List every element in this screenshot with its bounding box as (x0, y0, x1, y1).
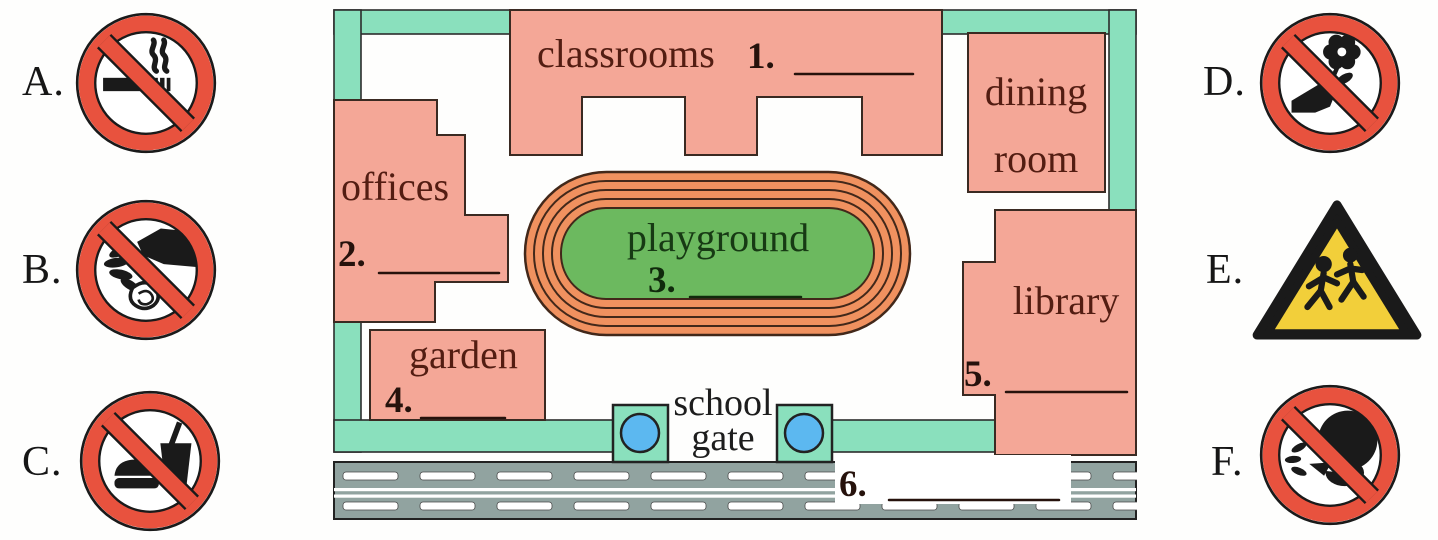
sign-f-letter: F. (1211, 438, 1244, 486)
playground-label: playground (627, 215, 809, 260)
no-spitting-icon[interactable] (1256, 381, 1404, 529)
offices-label: offices (341, 164, 449, 209)
children-crossing-warning-icon[interactable] (1251, 196, 1423, 344)
gate-post-dot (785, 414, 823, 452)
blank-1-number: 1. (747, 36, 775, 77)
blank-6-backdrop (835, 455, 1071, 504)
sign-d-letter: D. (1203, 58, 1246, 106)
wall-bottom-left (334, 420, 613, 452)
blank-4-number: 4. (385, 380, 413, 421)
no-smoking-icon[interactable] (72, 9, 220, 157)
school-map: classrooms offices playground garden din… (333, 8, 1137, 520)
wall-right (1109, 10, 1136, 212)
garden-label: garden (409, 332, 518, 377)
blank-3-number: 3. (648, 260, 676, 301)
sign-b-letter: B. (22, 246, 63, 294)
blank-6[interactable]: 6. (835, 455, 1071, 505)
library-building (963, 210, 1136, 455)
wall-bottom-right (832, 420, 995, 452)
library-label: library (1013, 278, 1120, 323)
gate-post-dot (621, 414, 659, 452)
dining-room-label-line2: room (994, 136, 1078, 181)
offices-building (334, 100, 508, 322)
classrooms-label: classrooms (537, 31, 715, 76)
no-picking-flowers-icon[interactable] (1256, 9, 1404, 157)
worksheet: A. B. (0, 0, 1438, 540)
no-littering-icon[interactable] (72, 196, 220, 344)
blank-5-number: 5. (964, 354, 992, 395)
dining-room-label-line1: dining (985, 69, 1087, 114)
school-gate-label-line2: gate (691, 417, 754, 459)
sign-e-letter: E. (1206, 246, 1244, 294)
sign-a-letter: A. (22, 58, 65, 106)
blank-6-number: 6. (839, 464, 867, 505)
blank-2-number: 2. (338, 234, 366, 275)
no-food-or-drink-icon[interactable] (76, 387, 224, 535)
sign-c-letter: C. (22, 438, 63, 486)
